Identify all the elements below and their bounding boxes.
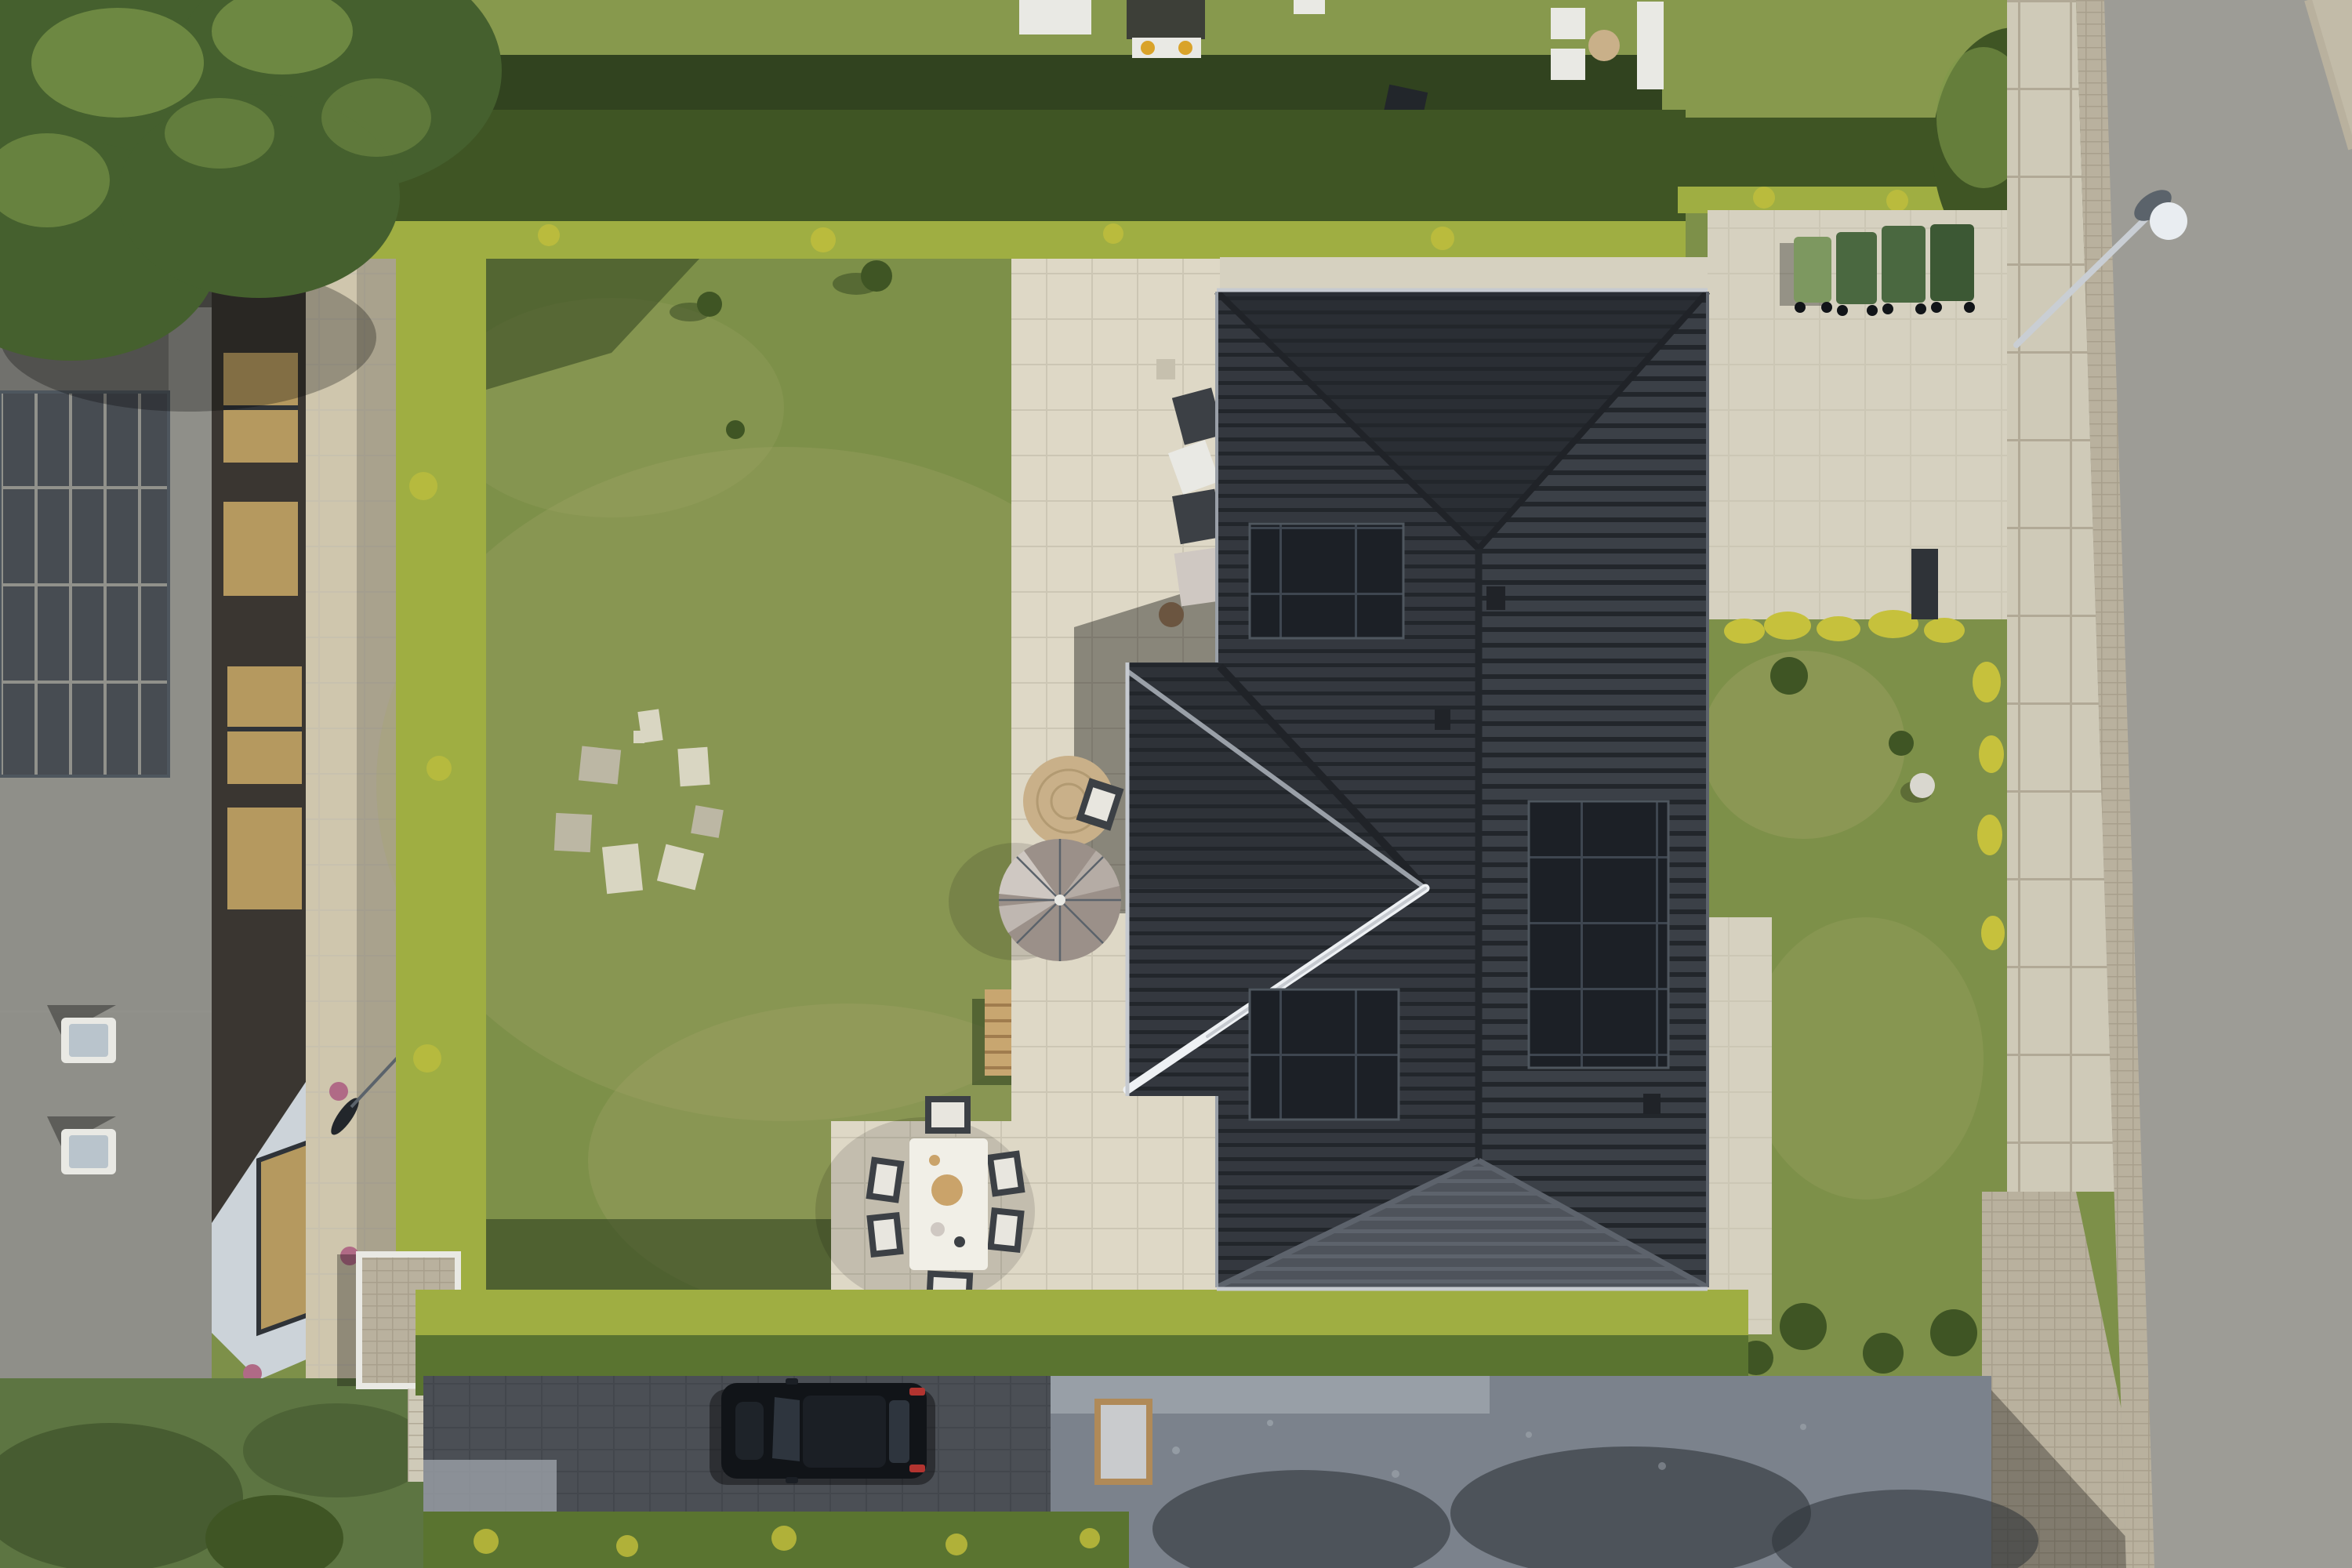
solar-array-sw	[1250, 989, 1399, 1120]
car-taillight	[909, 1465, 925, 1472]
serving-board	[931, 1174, 963, 1206]
hedge-highlight	[426, 756, 452, 781]
roof-vent	[1435, 710, 1450, 730]
playhouse-awning-stripe	[1178, 41, 1192, 55]
hedge-highlight	[1886, 190, 1908, 212]
round-garden-table	[1588, 30, 1620, 61]
wooden-frame-object	[1094, 1399, 1152, 1485]
car-hood-highlight	[735, 1402, 764, 1460]
canopy-highlight	[31, 8, 204, 118]
skylight-glass	[69, 1024, 108, 1057]
lamp-head	[2150, 202, 2187, 240]
frame-inner	[1101, 1405, 1146, 1479]
garden-chair	[1551, 49, 1585, 80]
wheelie-bin-green	[1836, 232, 1877, 304]
left-building-solar-array	[0, 392, 169, 776]
window	[227, 808, 302, 909]
playhouse-roof	[1127, 0, 1205, 39]
car-windshield	[772, 1397, 800, 1461]
parked-car	[710, 1378, 935, 1485]
garden-bench	[1637, 2, 1664, 89]
chair-cushion	[931, 1102, 964, 1127]
aerial-scene	[0, 0, 2352, 1568]
shrub	[697, 292, 722, 317]
hedge-highlight	[811, 227, 836, 252]
shrub	[726, 420, 745, 439]
lawn-patch	[554, 813, 592, 852]
utility-post	[1911, 549, 1938, 619]
car-roof	[803, 1396, 886, 1468]
window	[223, 502, 298, 596]
wheelie-bin-green	[1882, 226, 1926, 303]
stone-dome	[1910, 773, 1935, 798]
car-mirror	[786, 1378, 798, 1385]
garden-chair	[1294, 0, 1325, 14]
chair-cushion	[873, 1163, 897, 1196]
car-taillight	[909, 1388, 925, 1396]
table-bowl	[931, 1222, 945, 1236]
east-side	[1701, 210, 2009, 1375]
car-mirror	[786, 1477, 798, 1483]
parasol-pole-top	[1054, 895, 1065, 906]
canopy-highlight	[321, 78, 431, 157]
window	[227, 666, 302, 784]
hedge-highlight	[1753, 187, 1775, 209]
lawn-patch	[602, 844, 643, 894]
parasol	[949, 839, 1121, 961]
left-building	[0, 259, 439, 1388]
chair-cushion	[873, 1219, 897, 1251]
lawn-patch	[633, 731, 644, 743]
terrace-shadow	[337, 1254, 359, 1386]
chair-cushion	[994, 1214, 1018, 1247]
lawn-patch	[691, 805, 724, 838]
hedge-highlight	[538, 224, 560, 246]
house-side-walkway-joints	[1708, 917, 1772, 1334]
hedge-highlight	[409, 472, 437, 500]
aerial-photo	[0, 0, 2352, 1568]
roof-vent	[1643, 1094, 1661, 1114]
wheelie-bin-dark-green	[1930, 224, 1974, 301]
bottom-hedge-sunlit	[416, 1290, 1748, 1335]
lawn-patch	[677, 747, 710, 787]
hedge-highlight	[1103, 223, 1123, 244]
garden-chair	[1551, 8, 1585, 39]
hedge-highlight	[1431, 227, 1454, 250]
hedge-highlight	[413, 1044, 441, 1073]
north-paver-strip	[1220, 257, 1709, 293]
pink-flower-pot	[329, 1082, 348, 1101]
roof-vent	[1486, 586, 1505, 610]
solar-array-east	[1529, 801, 1668, 1068]
lawn-patch	[579, 746, 621, 785]
table-cup	[929, 1155, 940, 1166]
skylight-glass	[69, 1135, 108, 1168]
chair-cushion	[993, 1157, 1018, 1189]
canopy-highlight	[165, 98, 274, 169]
plant-pot	[1159, 602, 1184, 627]
wheelie-bin-light-green	[1794, 237, 1831, 303]
car-rear-window	[889, 1400, 909, 1463]
door-mat	[1156, 359, 1175, 379]
solar-array-nw	[1250, 524, 1403, 638]
playhouse-awning-stripe	[1141, 41, 1155, 55]
tree-shadow	[243, 1403, 431, 1497]
east-lawn-dry	[1748, 917, 1984, 1200]
street	[1982, 0, 2352, 1568]
shrub	[861, 260, 892, 292]
white-garden-fence	[1019, 0, 1091, 34]
table-cup	[954, 1236, 965, 1247]
